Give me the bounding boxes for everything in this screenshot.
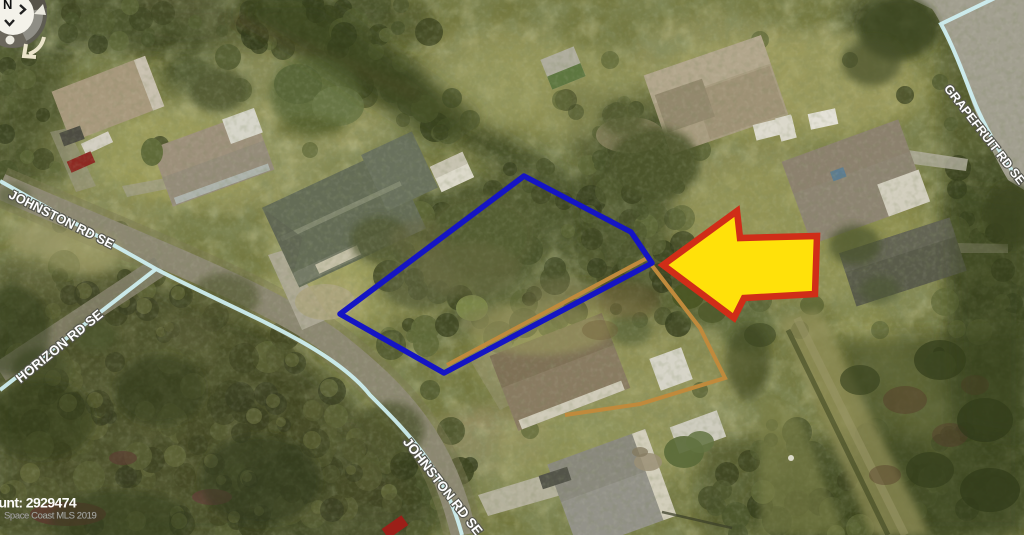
svg-text:Count: 2929474: Count: 2929474: [0, 495, 77, 511]
svg-text:N: N: [3, 0, 12, 12]
svg-text:Space Coast MLS 2019: Space Coast MLS 2019: [4, 510, 96, 521]
